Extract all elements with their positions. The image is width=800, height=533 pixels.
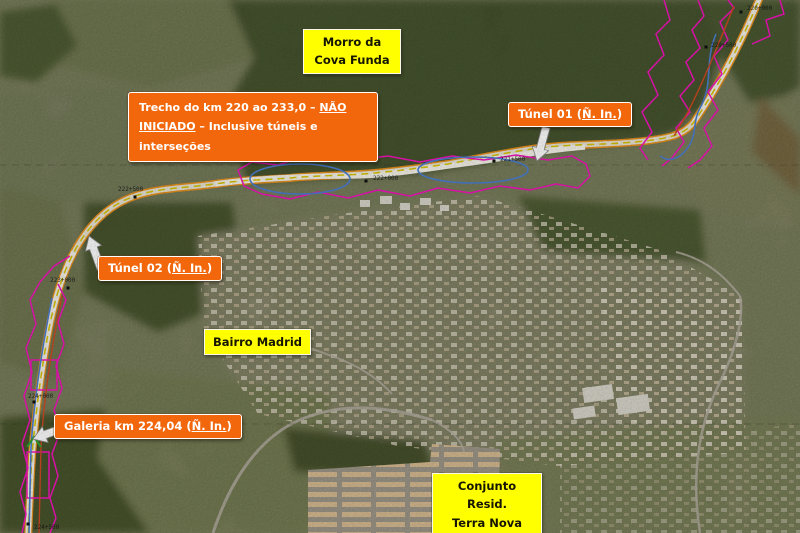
label-line: Cova Funda	[312, 51, 392, 69]
callout-text: Trecho do km 220 ao 233,0 –	[139, 101, 319, 114]
callout-text-emphasis: Ñ. In.	[172, 261, 207, 275]
callout-text: )	[207, 261, 212, 275]
label-line: Terra Nova (1)	[441, 514, 533, 533]
callout-text-emphasis: Ñ. In.	[192, 419, 227, 433]
map-figure: 220+000220+500221+500222+000222+500223+0…	[0, 0, 800, 533]
callout-text: Túnel 01 (	[518, 107, 582, 121]
callout-tunel-01: Túnel 01 (Ñ. In.)	[508, 102, 632, 127]
callout-text: )	[617, 107, 622, 121]
callout-text-emphasis: Ñ. In.	[582, 107, 617, 121]
callout-trecho-nao-iniciado: Trecho do km 220 ao 233,0 – NÃO INICIADO…	[128, 92, 378, 162]
label-line: Morro da	[312, 33, 392, 51]
label-line: Conjunto Resid.	[441, 477, 533, 514]
callout-text: Túnel 02 (	[108, 261, 172, 275]
callout-galeria-km-224: Galeria km 224,04 (Ñ. In.)	[54, 414, 242, 439]
callout-text: )	[226, 419, 231, 433]
label-morro-da-cova-funda: Morro da Cova Funda	[303, 29, 401, 74]
label-bairro-madrid: Bairro Madrid	[204, 329, 311, 355]
label-conjunto-terra-nova: Conjunto Resid. Terra Nova (1)	[432, 473, 542, 533]
label-line: Bairro Madrid	[213, 333, 302, 351]
callout-text: Galeria km 224,04 (	[64, 419, 192, 433]
callout-tunel-02: Túnel 02 (Ñ. In.)	[98, 256, 222, 281]
